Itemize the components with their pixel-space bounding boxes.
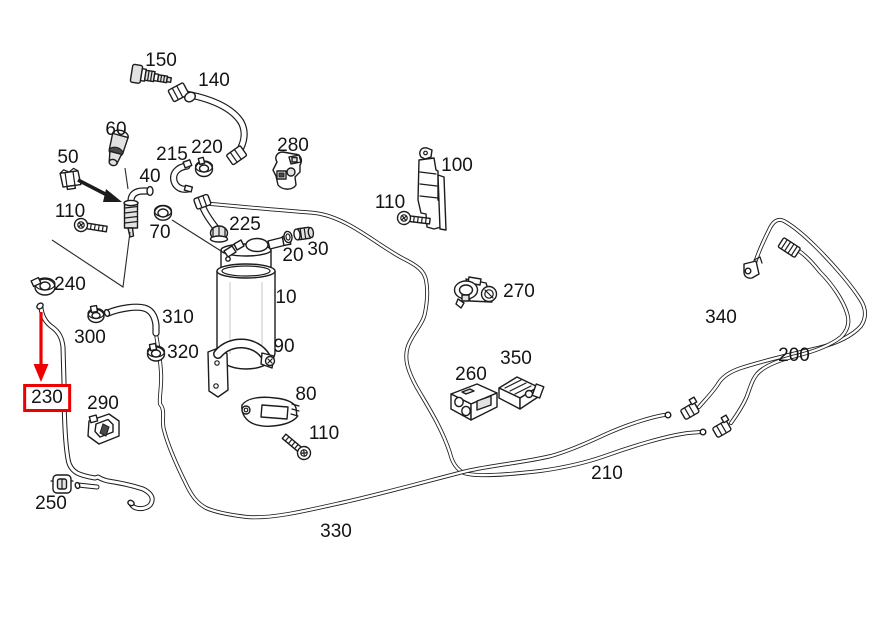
connector-200-top <box>778 238 801 258</box>
part-270-holder <box>455 277 497 308</box>
part-label-200[interactable]: 200 <box>778 346 810 366</box>
part-label-90[interactable]: 90 <box>273 337 294 357</box>
part-260-block <box>451 384 497 420</box>
part-label-320[interactable]: 320 <box>167 343 199 363</box>
part-310-hose <box>104 307 156 333</box>
part-50-clip <box>60 168 82 190</box>
part-label-60[interactable]: 60 <box>105 120 126 140</box>
part-280-bracket <box>273 152 301 189</box>
part-300-clamp <box>88 306 104 323</box>
quick-connector-bottom-right <box>710 415 734 438</box>
part-label-20[interactable]: 20 <box>282 246 303 266</box>
part-225-fitting <box>202 205 228 242</box>
part-320-clamp <box>148 343 165 361</box>
part-label-240[interactable]: 240 <box>54 275 86 295</box>
part-label-290[interactable]: 290 <box>87 394 119 414</box>
part-label-350[interactable]: 350 <box>500 349 532 369</box>
part-290-clamp <box>88 414 119 444</box>
part-label-150[interactable]: 150 <box>145 51 177 71</box>
part-label-340[interactable]: 340 <box>705 308 737 328</box>
part-label-215[interactable]: 215 <box>156 145 188 165</box>
part-label-280[interactable]: 280 <box>277 136 309 156</box>
part-label-110-left[interactable]: 110 <box>55 202 85 222</box>
part-label-110-right[interactable]: 110 <box>375 193 405 213</box>
part-label-10[interactable]: 10 <box>275 288 296 308</box>
part-70-bushing <box>155 205 172 220</box>
part-label-300[interactable]: 300 <box>74 328 106 348</box>
part-240-clamp <box>31 278 55 295</box>
part-label-110-bottom[interactable]: 110 <box>309 424 339 444</box>
part-250-grommet <box>51 475 73 493</box>
part-label-100[interactable]: 100 <box>441 156 473 176</box>
pointer-arrow <box>78 180 122 202</box>
part-label-30[interactable]: 30 <box>307 240 328 260</box>
diagram-page: 1501406050215220280100110401107022520301… <box>0 0 877 627</box>
part-label-270[interactable]: 270 <box>503 282 535 302</box>
part-label-330[interactable]: 330 <box>320 522 352 542</box>
part-350-block <box>499 377 544 409</box>
connector-340-top <box>744 257 762 278</box>
part-label-250[interactable]: 250 <box>35 494 67 514</box>
part-label-140[interactable]: 140 <box>198 71 230 91</box>
quick-connector-bottom-left <box>678 397 702 420</box>
line-start-clamp <box>193 194 211 209</box>
part-label-80[interactable]: 80 <box>295 385 316 405</box>
part-label-310[interactable]: 310 <box>162 308 194 328</box>
part-80-bracket <box>242 397 299 426</box>
part-label-230[interactable]: 230 <box>23 384 71 412</box>
part-220-clamp <box>196 157 213 176</box>
part-label-225[interactable]: 225 <box>229 215 261 235</box>
part-label-40[interactable]: 40 <box>139 167 160 187</box>
part-label-210[interactable]: 210 <box>591 464 623 484</box>
part-label-260[interactable]: 260 <box>455 365 487 385</box>
diagram-canvas <box>0 0 877 627</box>
part-label-50[interactable]: 50 <box>57 148 78 168</box>
part-label-220[interactable]: 220 <box>191 138 223 158</box>
part-label-70[interactable]: 70 <box>149 223 170 243</box>
